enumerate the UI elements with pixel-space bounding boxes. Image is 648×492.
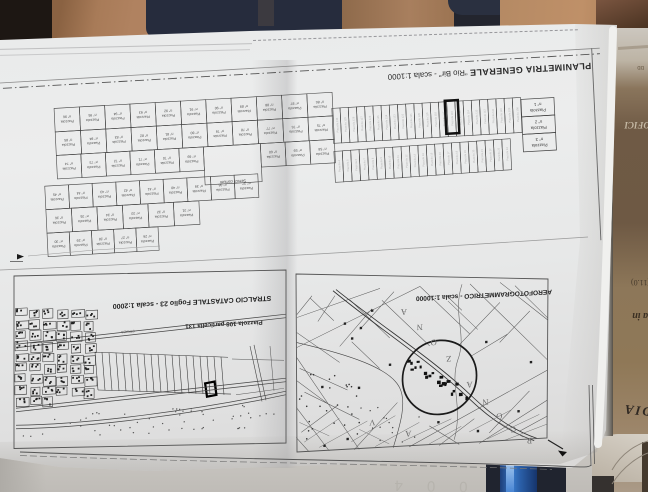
svg-text:Piazzola 120: Piazzola 120 [417, 112, 422, 128]
svg-text:R: R [526, 436, 532, 446]
svg-text:Piazzola: Piazzola [119, 240, 132, 245]
svg-text:Piazzola: Piazzola [267, 154, 280, 159]
svg-text:n° 91: n° 91 [189, 107, 197, 111]
svg-text:AEROFOTOGRAMMETRICO - scala: AEROFOTOGRAMMETRICO - scala 1:10000 [416, 288, 552, 302]
svg-text:n° 35: n° 35 [80, 214, 88, 218]
svg-text:Piazzola: Piazzola [141, 239, 154, 244]
svg-text:n° 84: n° 84 [89, 136, 97, 140]
svg-text:n° 37: n° 37 [242, 181, 250, 185]
svg-text:Piazzola: Piazzola [291, 153, 304, 158]
svg-text:Piazzola: Piazzola [239, 132, 252, 137]
svg-text:Piazzola 4: Piazzola 4 [337, 159, 342, 172]
svg-text:V: V [368, 418, 375, 428]
svg-text:n° 30: n° 30 [54, 239, 62, 243]
svg-text:Piazzola 12: Piazzola 12 [404, 154, 409, 168]
svg-text:n° 42: n° 42 [124, 188, 132, 192]
svg-text:A: A [400, 307, 407, 317]
svg-text:Piazzola: Piazzola [87, 141, 100, 146]
svg-text:Piazzola: Piazzola [53, 220, 66, 225]
svg-text:Piazzola: Piazzola [160, 160, 173, 165]
svg-text:n° 73: n° 73 [89, 160, 97, 164]
svg-text:Piazzola: Piazzola [263, 107, 276, 112]
svg-text:Piazzola: Piazzola [136, 162, 149, 167]
svg-text:Piazzola: Piazzola [530, 125, 547, 131]
svg-text:Piazzola 111: Piazzola 111 [491, 108, 496, 123]
svg-text:n° 90: n° 90 [215, 105, 223, 109]
svg-text:n° 89: n° 89 [240, 104, 248, 108]
svg-text:N: N [482, 397, 488, 407]
svg-text:Piazzola: Piazzola [145, 191, 158, 196]
svg-text:n° 93: n° 93 [139, 110, 147, 114]
svg-text:A: A [404, 429, 411, 439]
svg-text:Piazzola 127: Piazzola 127 [359, 116, 364, 132]
svg-text:Piazzola 124: Piazzola 124 [384, 114, 389, 130]
svg-text:n° 36: n° 36 [55, 215, 63, 219]
svg-text:Piazzola: Piazzola [62, 142, 75, 147]
svg-text:n° 33: n° 33 [131, 211, 139, 215]
svg-text:n° 38: n° 38 [218, 182, 226, 186]
svg-text:n° 95: n° 95 [88, 113, 96, 117]
svg-text:Piazzola 9: Piazzola 9 [379, 156, 384, 169]
svg-text:n° 87: n° 87 [290, 101, 298, 105]
svg-text:Piazzola 18: Piazzola 18 [454, 150, 459, 164]
svg-text:Piazzola: Piazzola [74, 195, 87, 200]
svg-text:Piazzola: Piazzola [138, 138, 151, 143]
svg-text:n° 41: n° 41 [147, 187, 155, 191]
svg-text:Piazzola 14: Piazzola 14 [421, 153, 426, 167]
svg-text:Piazzola: Piazzola [86, 117, 99, 122]
svg-text:Piazzola: Piazzola [185, 159, 198, 164]
svg-text:Piazzola: Piazzola [264, 130, 277, 135]
svg-text:Piazzola: Piazzola [98, 194, 111, 199]
svg-text:n° 26: n° 26 [143, 234, 151, 238]
svg-text:Piazzola 122: Piazzola 122 [400, 113, 405, 129]
svg-text:Piazzola 8: Piazzola 8 [371, 157, 376, 170]
svg-text:n° 77: n° 77 [266, 126, 274, 130]
svg-text:n° 80: n° 80 [190, 130, 198, 134]
svg-text:Piazzola: Piazzola [192, 189, 205, 194]
svg-text:Piazzola 129: Piazzola 129 [343, 117, 348, 133]
svg-text:n° 34: n° 34 [106, 212, 114, 216]
svg-text:n° 40: n° 40 [171, 185, 179, 189]
svg-text:Piazzola 5: Piazzola 5 [345, 159, 350, 172]
svg-text:Piazzola 24: Piazzola 24 [505, 147, 510, 161]
svg-text:n° 45: n° 45 [53, 192, 61, 196]
svg-text:N: N [417, 322, 423, 332]
svg-text:Piazzola: Piazzola [169, 190, 182, 195]
svg-text:n° 27: n° 27 [121, 235, 129, 239]
svg-text:Piazzola: Piazzola [104, 217, 117, 222]
svg-text:n° 1: n° 1 [533, 102, 541, 107]
svg-text:Piazzola: Piazzola [531, 142, 548, 148]
svg-text:Piazzola: Piazzola [216, 187, 229, 192]
svg-text:n° 79: n° 79 [216, 129, 224, 133]
svg-text:Piazzola: Piazzola [96, 241, 109, 246]
svg-text:Piazzola 109: Piazzola 109 [507, 107, 512, 123]
svg-text:Piazzola 125: Piazzola 125 [376, 115, 381, 131]
svg-text:Piazzola 13: Piazzola 13 [413, 153, 418, 167]
svg-text:Piazzola: Piazzola [52, 244, 65, 249]
svg-text:Piazzola 121: Piazzola 121 [409, 113, 414, 129]
svg-text:n° 94: n° 94 [113, 111, 121, 115]
svg-text:n° 31: n° 31 [182, 208, 190, 212]
svg-text:Piazzola 16: Piazzola 16 [438, 151, 443, 165]
svg-text:n° 92: n° 92 [164, 108, 172, 112]
svg-text:Piazzola: Piazzola [163, 136, 176, 141]
svg-text:Piazzola: Piazzola [112, 139, 125, 144]
svg-text:Piazzola 123: Piazzola 123 [392, 114, 397, 130]
svg-text:Piazzola 116: Piazzola 116 [450, 110, 455, 125]
svg-text:Piazzola: Piazzola [50, 197, 63, 202]
svg-text:Piazzola: Piazzola [529, 107, 546, 113]
svg-text:Piazzola 17: Piazzola 17 [446, 151, 451, 165]
svg-text:Piazzola 130: Piazzola 130 [335, 117, 340, 133]
svg-text:n° 28: n° 28 [99, 237, 107, 241]
svg-text:n° 59: n° 59 [293, 148, 301, 152]
svg-text:Piazzola: Piazzola [61, 119, 74, 124]
svg-text:C: C [510, 425, 516, 435]
svg-text:Z: Z [446, 354, 451, 364]
svg-text:n° 72: n° 72 [114, 158, 122, 162]
svg-text:n° 76: n° 76 [291, 124, 299, 128]
svg-text:Piazzola 128: Piazzola 128 [351, 116, 356, 132]
svg-text:Piazzola 23: Piazzola 23 [496, 147, 501, 161]
svg-text:Piazzola 21: Piazzola 21 [480, 148, 485, 162]
svg-text:Piazzola 20: Piazzola 20 [471, 149, 476, 163]
svg-text:Piazzola 11: Piazzola 11 [396, 155, 401, 169]
svg-text:Piazzola: Piazzola [87, 165, 100, 170]
svg-text:Piazzola: Piazzola [237, 109, 250, 114]
svg-text:n° 43: n° 43 [100, 189, 108, 193]
svg-text:n° 39: n° 39 [195, 184, 203, 188]
svg-text:n° 44: n° 44 [76, 191, 84, 195]
svg-text:n° 3: n° 3 [535, 137, 543, 142]
svg-text:Piazzola: Piazzola [129, 216, 142, 221]
svg-text:Piazzola: Piazzola [289, 129, 302, 134]
svg-text:Piazzola 6: Piazzola 6 [354, 158, 359, 171]
svg-text:Piazzola 7: Piazzola 7 [362, 158, 367, 171]
svg-text:n° 88: n° 88 [265, 103, 273, 107]
svg-text:Piazzola 19: Piazzola 19 [463, 150, 468, 164]
svg-text:n° 75: n° 75 [317, 123, 325, 127]
svg-text:n° 83: n° 83 [115, 135, 123, 139]
svg-text:Piazzola 126: Piazzola 126 [368, 115, 373, 131]
svg-text:STRALCIO CATASTALE Foglio 23: STRALCIO CATASTALE Foglio 23 - scala 1:2… [113, 294, 272, 309]
svg-text:Piazzola: Piazzola [314, 128, 327, 133]
svg-text:O: O [496, 411, 502, 421]
svg-text:Piazzola: Piazzola [162, 113, 175, 118]
svg-text:n° 86: n° 86 [316, 100, 324, 104]
svg-text:n° 85: n° 85 [64, 138, 72, 142]
svg-text:Piazzola: Piazzola [288, 106, 301, 111]
svg-text:Piazzola: Piazzola [155, 214, 168, 219]
svg-text:Piazzola: Piazzola [188, 135, 201, 140]
svg-text:Piazzola: Piazzola [316, 151, 329, 156]
svg-text:n° 71: n° 71 [138, 157, 146, 161]
svg-text:Piazzola 108: Piazzola 108 [515, 107, 520, 123]
svg-text:n° 32: n° 32 [157, 209, 165, 213]
svg-text:Piazzola: Piazzola [212, 110, 225, 115]
svg-text:Piazzola 112: Piazzola 112 [482, 109, 487, 124]
svg-text:Piazzola: Piazzola [74, 243, 87, 248]
svg-text:Piazzola: Piazzola [111, 116, 124, 121]
svg-text:n° 70: n° 70 [163, 156, 171, 160]
svg-text:Piazzola: Piazzola [136, 115, 149, 120]
svg-text:Piazzola 113: Piazzola 113 [474, 109, 479, 124]
svg-text:n° 78: n° 78 [241, 127, 249, 131]
svg-text:A: A [466, 380, 473, 390]
svg-text:Piazzola 15: Piazzola 15 [429, 152, 434, 166]
svg-text:n° 82: n° 82 [140, 133, 148, 137]
svg-text:Piazzola 119: Piazzola 119 [425, 112, 430, 127]
svg-text:Piazzola 114: Piazzola 114 [466, 110, 471, 125]
svg-text:Piazzola: Piazzola [213, 133, 226, 138]
svg-text:n° 96: n° 96 [63, 114, 71, 118]
svg-text:Piazzola 22: Piazzola 22 [488, 148, 493, 162]
svg-text:Piazzola: Piazzola [187, 112, 200, 117]
svg-text:Piazzola: Piazzola [313, 104, 326, 109]
svg-text:Piazzola 10: Piazzola 10 [387, 155, 392, 169]
svg-text:Piazzola: Piazzola [240, 186, 253, 191]
svg-text:O: O [431, 338, 437, 348]
svg-text:Piazzola: Piazzola [62, 166, 75, 171]
svg-text:Piazzola 110: Piazzola 110 [499, 108, 504, 123]
svg-text:Piazzola: Piazzola [111, 163, 124, 168]
svg-text:STRADA: STRADA [120, 329, 135, 334]
svg-text:n° 58: n° 58 [318, 147, 326, 151]
svg-text:n° 74: n° 74 [65, 161, 73, 165]
svg-text:Piazzola 118: Piazzola 118 [433, 111, 438, 126]
svg-text:Piazzola: Piazzola [121, 193, 134, 198]
svg-text:n° 29: n° 29 [76, 238, 84, 242]
svg-text:n° 2: n° 2 [534, 119, 542, 124]
svg-text:n° 60: n° 60 [269, 149, 277, 153]
svg-text:Piazzola: Piazzola [180, 213, 193, 218]
svg-text:Piazzola: Piazzola [78, 219, 91, 224]
svg-text:n° 81: n° 81 [165, 132, 173, 136]
svg-text:n° 69: n° 69 [187, 154, 195, 158]
